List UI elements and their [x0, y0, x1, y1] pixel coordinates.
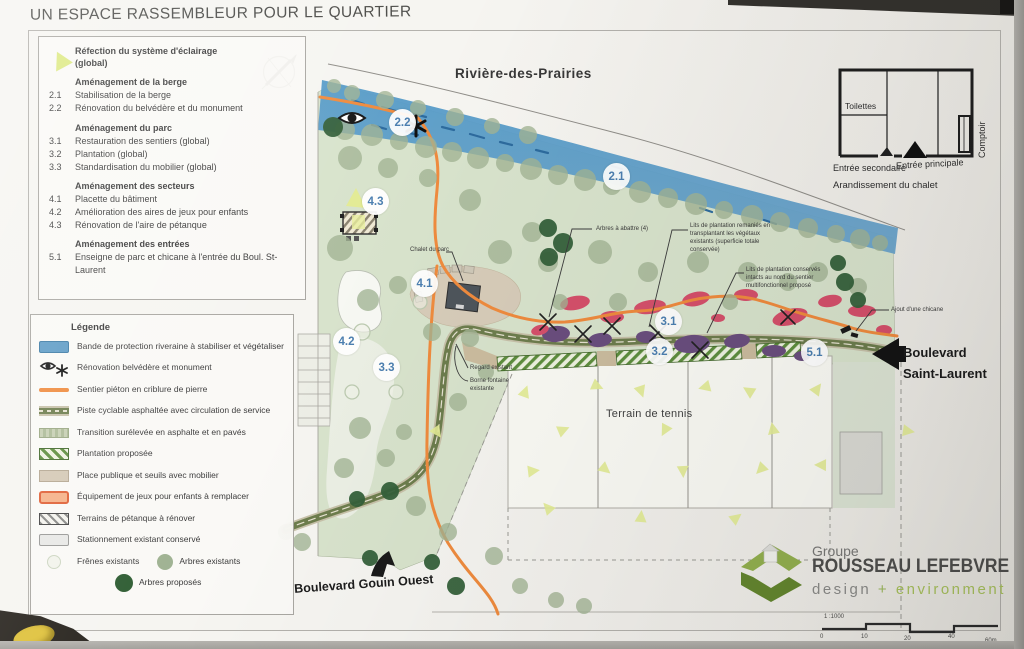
scale-ratio: 1 :1000 — [824, 614, 844, 620]
scale-tick-10: 10 — [861, 634, 868, 640]
transition-swatch — [39, 428, 69, 438]
program-item: 4.2Amélioration des aires de jeux pour e… — [49, 206, 297, 218]
river-label: Rivière-des-Prairies — [455, 66, 592, 81]
firm-logo-mark — [741, 544, 802, 602]
callout-borne: Borne fontaine existante — [470, 377, 524, 393]
inset-room-toilettes: Toilettes — [845, 101, 876, 111]
photo-edge-bottom — [0, 641, 1024, 649]
program-item: 2.1Stabilisation de la berge — [49, 89, 297, 101]
play-swatch — [39, 491, 69, 504]
lighting-icon — [48, 48, 73, 72]
program-heading-berge: Aménagement de la berge — [75, 77, 297, 87]
program-heading-entrees: Aménagement des entrées — [75, 239, 297, 249]
chalet-inset-drawing — [840, 70, 972, 158]
legend-item: Terrains de pétanque à rénover — [37, 508, 287, 530]
poster: UN ESPACE RASSEMBLEUR POUR LE QUARTIER — [0, 0, 1015, 643]
legend-panel: Légende Bande de protection riveraine à … — [30, 314, 294, 615]
program-panel: Réfection du système d'éclairage (global… — [38, 36, 306, 300]
program-item: 3.1Restauration des sentiers (global) — [49, 135, 297, 147]
eye-star-icon — [37, 359, 71, 377]
path-swatch — [39, 388, 69, 392]
proposed-tree-swatch — [115, 574, 133, 592]
legend-item: Arbres proposés — [115, 573, 287, 595]
program-heading-secteurs: Aménagement des secteurs — [75, 181, 297, 191]
firm-name-label: ROUSSEAU LEFEBVRE — [812, 556, 1009, 578]
marker-5-1: 5.1 — [801, 339, 828, 366]
parking-swatch — [39, 534, 69, 546]
photo-edge-right — [1014, 0, 1024, 649]
photo-of-plan-board: UN ESPACE RASSEMBLEUR POUR LE QUARTIER — [0, 0, 1024, 649]
callout-trees-remove: Arbres à abattre (4) — [596, 225, 648, 233]
marker-3-3: 3.3 — [373, 354, 400, 381]
firm-tagline: design + environment — [812, 581, 1006, 598]
marker-4-3: 4.3 — [362, 188, 389, 215]
marker-3-1: 3.1 — [655, 308, 682, 335]
legend-item: Place publique et seuils avec mobilier — [37, 465, 287, 487]
callout-regard: Regard existant — [470, 364, 512, 372]
scale-tick-40: 40 — [948, 634, 955, 640]
river-swatch — [39, 341, 69, 353]
marker-2-2: 2.2 — [389, 109, 416, 136]
callout-beds-reworked: Lits de plantation remaniés en transplan… — [690, 222, 782, 254]
legend-item: Plantation proposée — [37, 444, 287, 466]
program-item: 3.2Plantation (global) — [49, 148, 297, 160]
inset-room-comptoir: Comptoir — [977, 100, 987, 158]
legend-item: Piste cyclable asphaltée avec circulatio… — [37, 401, 287, 423]
callout-chalet: Chalet du parc — [410, 246, 449, 254]
petanque-swatch — [39, 513, 69, 525]
plantation-swatch — [39, 448, 69, 460]
legend-item: Sentier piéton en criblure de pierre — [37, 379, 287, 401]
program-item: 2.2Rénovation du belvédère et du monumen… — [49, 102, 297, 114]
existing-tree-swatch — [157, 554, 173, 570]
marker-4-1: 4.1 — [411, 270, 438, 297]
marker-3-2: 3.2 — [646, 338, 673, 365]
marker-2-1: 2.1 — [603, 163, 630, 190]
program-item: 5.1Enseigne de parc et chicane à l'entré… — [49, 251, 297, 275]
legend-item: Rénovation belvédère et monument — [37, 358, 287, 380]
legend-item: Transition surélevée en asphalte et en p… — [37, 422, 287, 444]
legend-item: Équipement de jeux pour enfants à rempla… — [37, 487, 287, 509]
legend-title: Légende — [71, 322, 287, 333]
callout-chicane: Ajout d'une chicane — [891, 306, 943, 314]
legend-item: Stationnement existant conservé — [37, 530, 287, 552]
street-saint-laurent-label: Boulevard Saint-Laurent — [903, 342, 993, 385]
eye-icon — [339, 113, 365, 123]
ash-tree-swatch — [47, 555, 61, 569]
legend-item: Bande de protection riveraine à stabilis… — [37, 336, 287, 358]
plaza-swatch — [39, 470, 69, 482]
program-heading-parc: Aménagement du parc — [75, 123, 297, 133]
program-item: 3.3Standardisation du mobilier (global) — [49, 161, 297, 173]
inset-caption: Arandissement du chalet — [833, 180, 938, 191]
program-item: 4.1Placette du bâtiment — [49, 193, 297, 205]
scale-bar — [822, 624, 998, 632]
bike-swatch — [39, 406, 69, 416]
callout-beds-kept: Lits de plantation conservés intacts au … — [746, 266, 826, 290]
legend-item-trees: Frênes existants Arbres existants — [37, 551, 287, 573]
scale-tick-0: 0 — [820, 634, 823, 640]
tennis-courts — [508, 356, 832, 508]
program-item: 4.3Rénovation de l'aire de pétanque — [49, 219, 297, 231]
tennis-label: Terrain de tennis — [606, 408, 692, 420]
program-lighting-label: Réfection du système d'éclairage (global… — [75, 45, 235, 69]
marker-4-2: 4.2 — [333, 328, 360, 355]
existing-parking — [298, 334, 330, 426]
